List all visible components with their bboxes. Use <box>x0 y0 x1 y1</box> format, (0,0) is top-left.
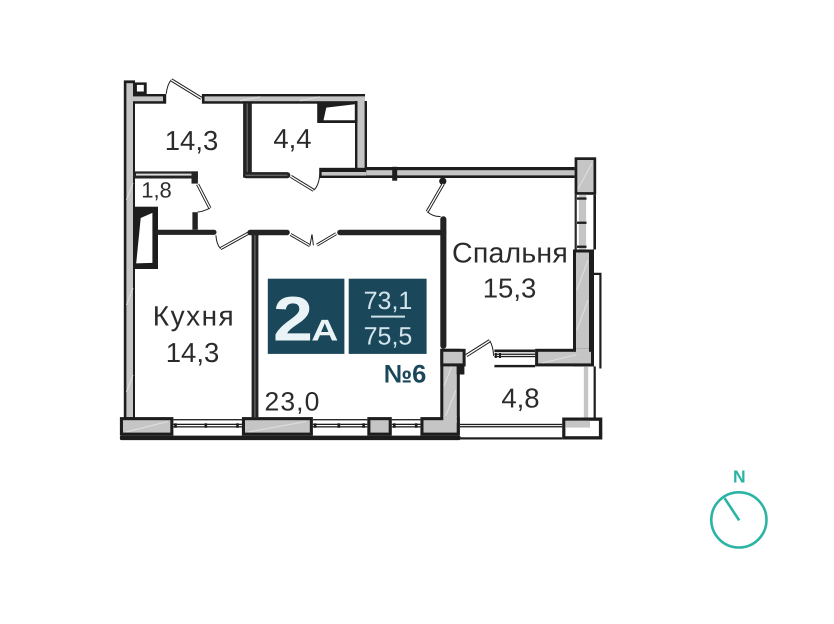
svg-text:15,3: 15,3 <box>483 272 537 303</box>
svg-text:4,8: 4,8 <box>501 383 539 414</box>
svg-text:4,4: 4,4 <box>273 123 311 154</box>
svg-text:14,3: 14,3 <box>165 125 219 156</box>
svg-text:Спальня: Спальня <box>452 238 568 270</box>
svg-text:2: 2 <box>273 285 313 355</box>
svg-text:73,1: 73,1 <box>364 287 413 315</box>
svg-text:14,3: 14,3 <box>166 337 220 368</box>
svg-text:№6: №6 <box>384 360 427 388</box>
svg-text:75,5: 75,5 <box>364 323 413 351</box>
svg-text:1,8: 1,8 <box>141 178 172 203</box>
svg-text:23,0: 23,0 <box>265 387 321 417</box>
svg-text:Кухня: Кухня <box>153 301 235 332</box>
svg-text:N: N <box>733 466 746 486</box>
svg-text:А: А <box>311 315 338 348</box>
